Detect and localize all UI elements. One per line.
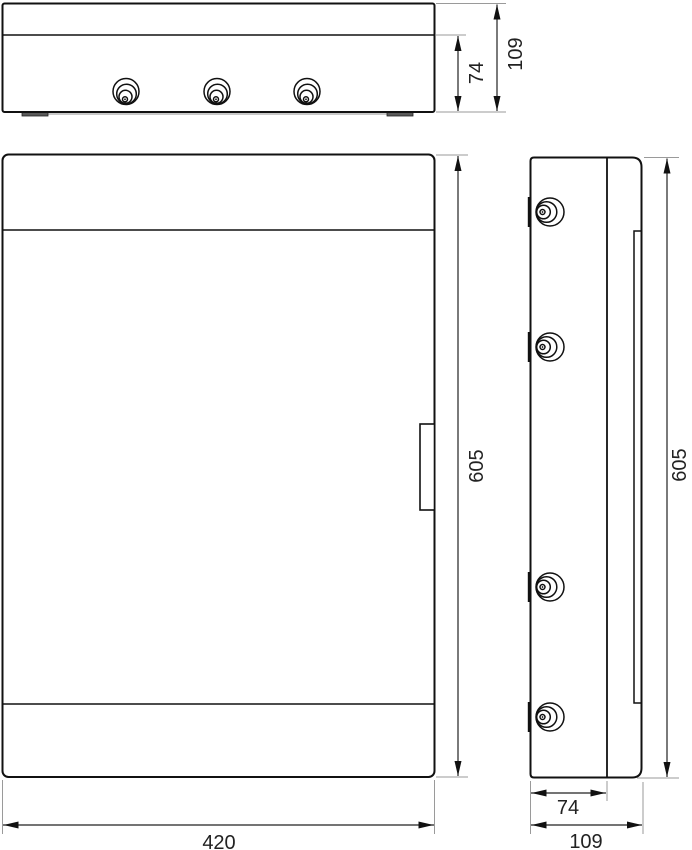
hinge-pin-icon	[536, 198, 564, 226]
arrowhead-down	[494, 96, 501, 111]
arrowhead-right	[419, 822, 434, 829]
hinge-pin-icon	[536, 703, 564, 731]
arrowhead-left	[4, 822, 19, 829]
dim-label-side-height: 605	[670, 448, 690, 481]
side-view	[528, 158, 642, 778]
hinge-pin-icon	[536, 333, 564, 361]
arrowhead-down	[455, 761, 462, 776]
arrowhead-up	[455, 36, 462, 51]
dim-label-front-height: 605	[467, 449, 487, 482]
arrowhead-left	[532, 822, 547, 829]
front-view-outline	[3, 155, 435, 778]
dim-label-front-width: 420	[202, 833, 235, 850]
dimension-74-top	[455, 36, 462, 111]
arrowhead-right	[591, 790, 606, 797]
hinge-tab	[528, 332, 532, 362]
cable-gland-knockout-icon	[204, 79, 230, 105]
technical-drawing-page: 74 109 605 420 605 74 109	[0, 0, 692, 850]
side-view-outline	[531, 158, 642, 778]
dimension-74-side	[531, 790, 606, 797]
hinge-tab	[528, 197, 532, 227]
dimension-109-top	[494, 5, 501, 112]
dimension-109-side	[531, 822, 642, 829]
arrowhead-left	[532, 790, 547, 797]
dimension-420-front	[3, 822, 434, 829]
arrowhead-down	[455, 96, 462, 111]
dim-label-top-depth-body: 74	[467, 62, 487, 84]
hinge-tab	[528, 572, 532, 602]
cable-gland-knockout-icon	[113, 79, 139, 105]
extension-lines	[436, 4, 506, 113]
hinge-pin-icon	[536, 573, 564, 601]
arrowhead-up	[494, 5, 501, 20]
cable-gland-knockout-icon	[294, 79, 320, 105]
arrowhead-up	[455, 156, 462, 171]
hinge-tab	[528, 702, 532, 732]
arrowhead-down	[664, 762, 671, 777]
door-handle	[420, 424, 435, 510]
dim-label-top-depth-total: 109	[506, 37, 526, 70]
enclosure-three-view-drawing	[0, 0, 692, 850]
dimension-605-front	[455, 156, 462, 776]
dim-label-side-depth-total: 109	[569, 832, 602, 850]
arrowhead-right	[627, 822, 642, 829]
dim-label-side-depth-body: 74	[557, 798, 579, 818]
top-view	[3, 4, 435, 117]
arrowhead-up	[664, 159, 671, 174]
top-view-dimensions	[436, 4, 506, 113]
front-view	[3, 155, 435, 778]
